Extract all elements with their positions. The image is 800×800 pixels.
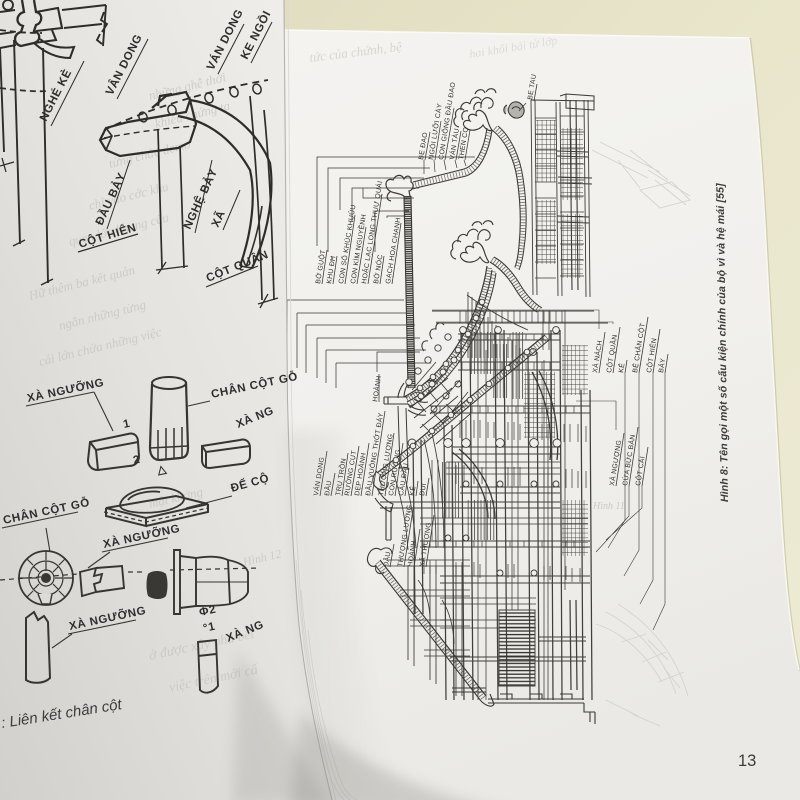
svg-text:13: 13 bbox=[738, 752, 756, 770]
svg-text:°1: °1 bbox=[202, 621, 216, 635]
svg-text:Hình 11: Hình 11 bbox=[592, 501, 625, 512]
